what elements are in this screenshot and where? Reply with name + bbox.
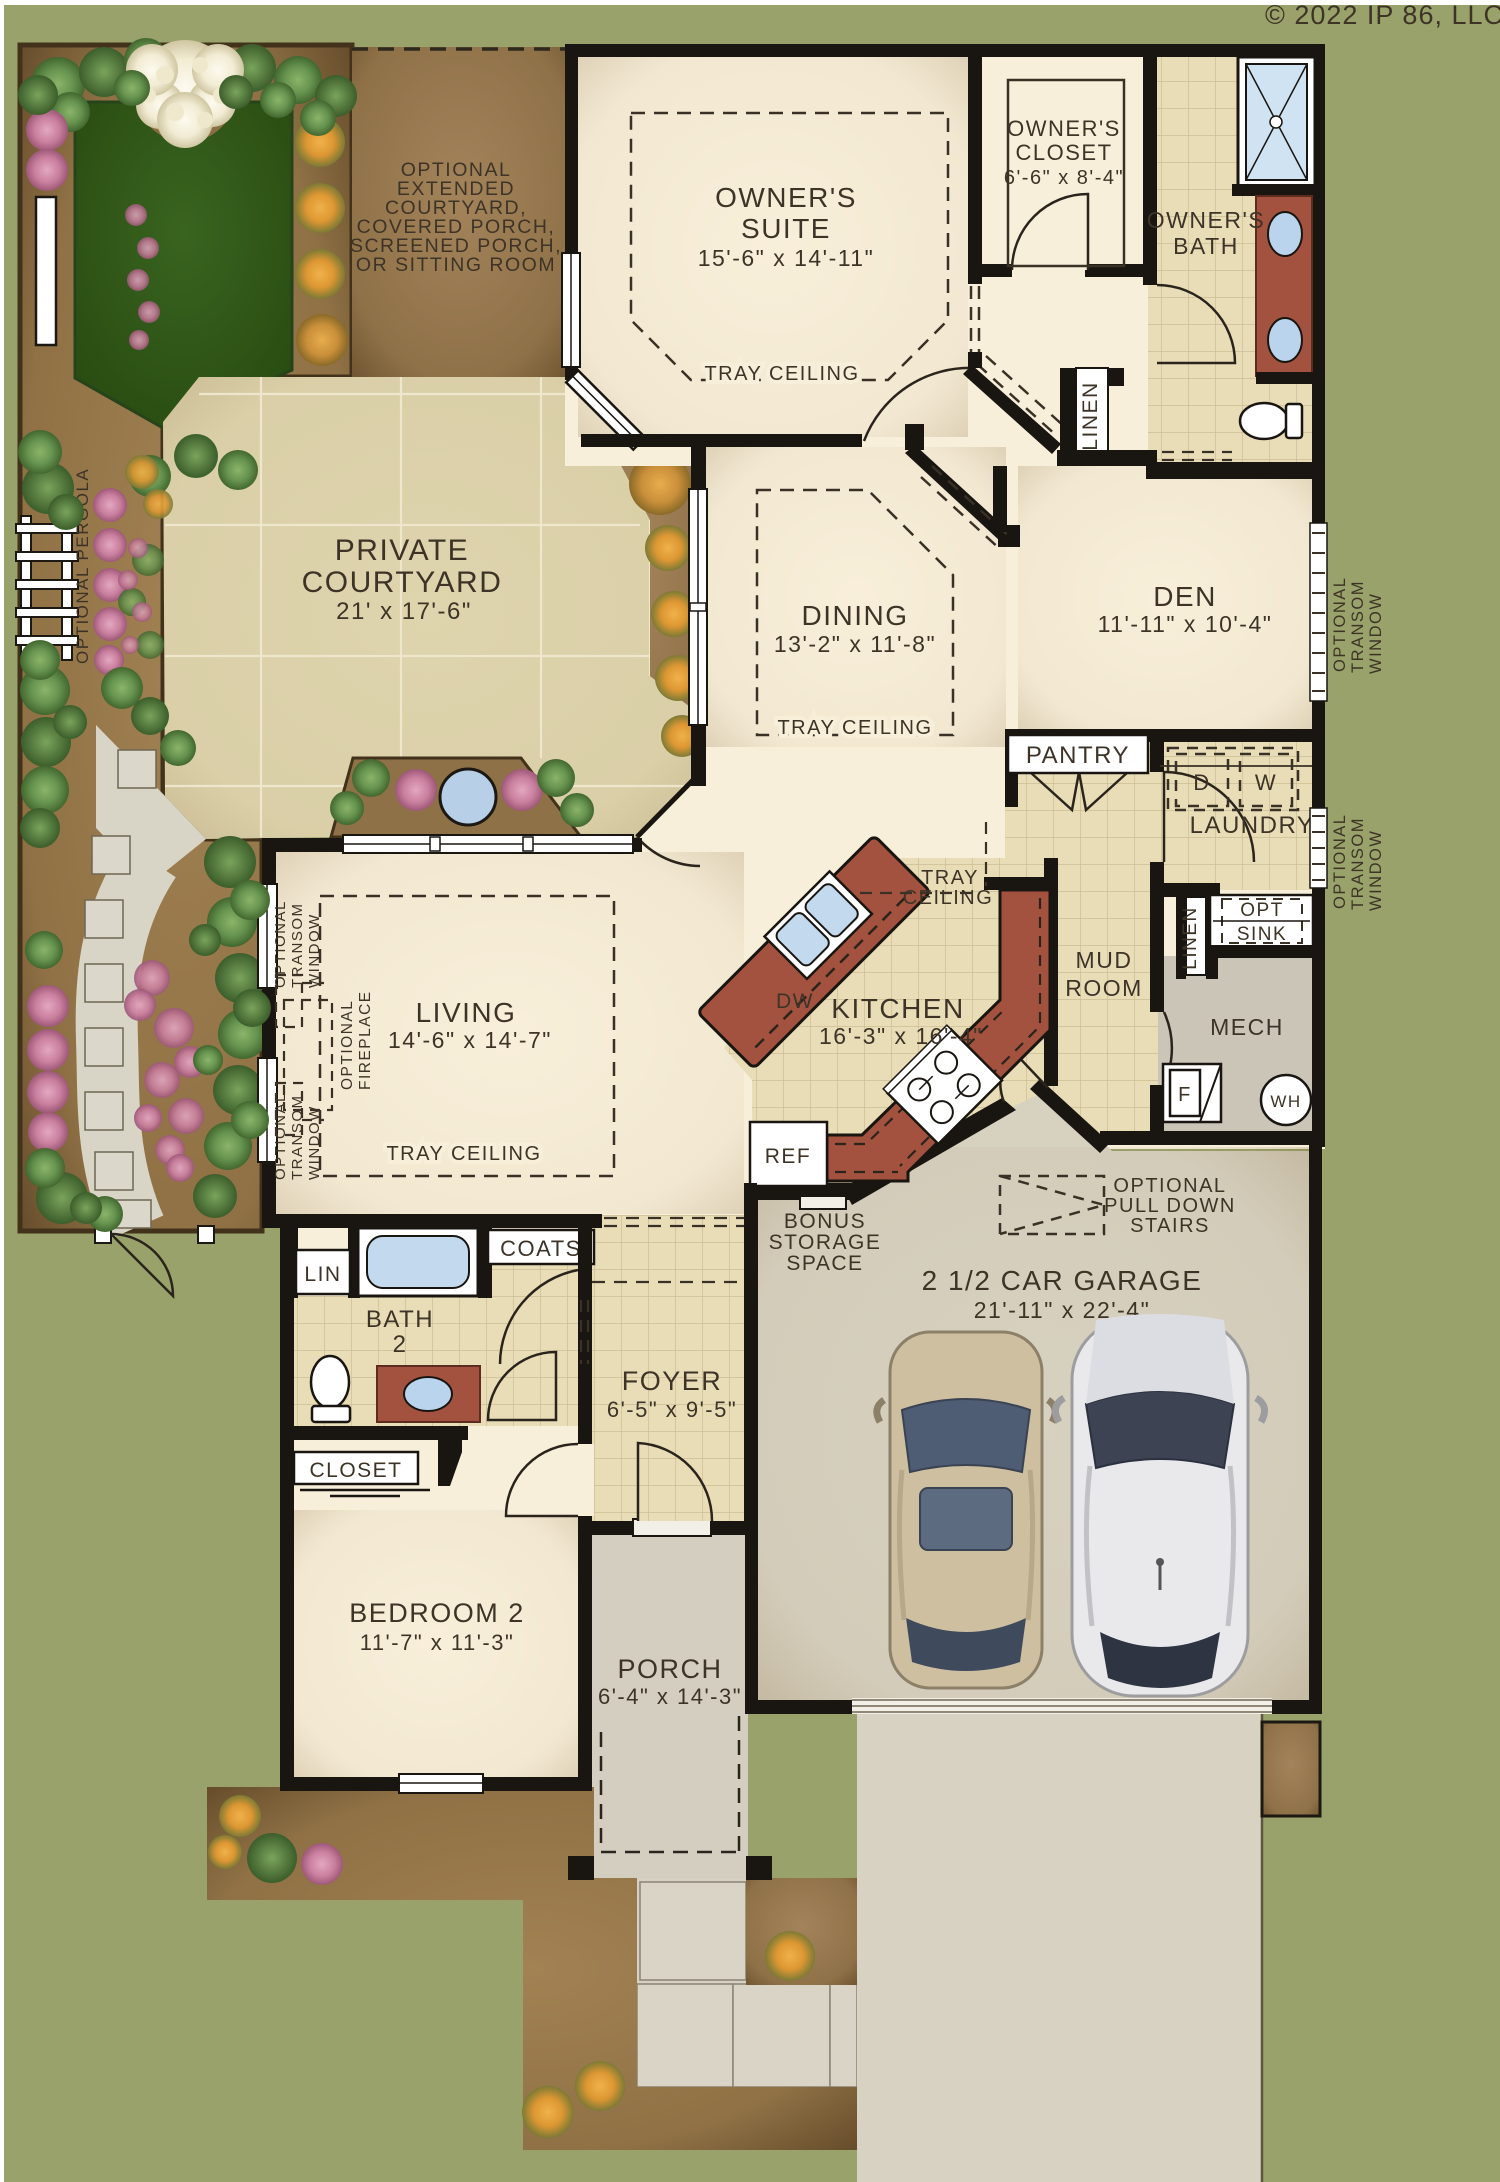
svg-text:DW: DW xyxy=(776,990,814,1013)
svg-text:LIN: LIN xyxy=(304,1263,341,1286)
svg-text:OWNER'S: OWNER'S xyxy=(715,182,857,213)
svg-text:LINEN: LINEN xyxy=(1180,906,1201,969)
svg-text:KITCHEN: KITCHEN xyxy=(831,993,964,1024)
svg-text:COATS: COATS xyxy=(500,1236,582,1261)
svg-text:6'-5" x 9'-5": 6'-5" x 9'-5" xyxy=(607,1397,737,1422)
svg-text:OPTIONAL: OPTIONAL xyxy=(1113,1175,1226,1197)
svg-text:OWNER'S: OWNER'S xyxy=(1007,116,1121,141)
svg-text:BONUS: BONUS xyxy=(784,1210,866,1233)
svg-text:BEDROOM 2: BEDROOM 2 xyxy=(349,1598,525,1628)
svg-text:W: W xyxy=(1255,770,1277,795)
svg-text:FOYER: FOYER xyxy=(622,1366,723,1396)
svg-text:14'-6" x 14'-7": 14'-6" x 14'-7" xyxy=(388,1027,552,1053)
svg-text:MUD: MUD xyxy=(1076,947,1133,973)
svg-text:STORAGE: STORAGE xyxy=(769,1231,882,1254)
svg-text:F: F xyxy=(1178,1084,1192,1106)
svg-text:MECH: MECH xyxy=(1210,1014,1284,1040)
svg-text:WH: WH xyxy=(1270,1092,1301,1111)
svg-text:DINING: DINING xyxy=(802,600,909,631)
svg-text:OPTIONAL: OPTIONAL xyxy=(1331,814,1349,909)
svg-text:TRANSOM: TRANSOM xyxy=(1349,817,1367,910)
svg-text:OPTIONAL: OPTIONAL xyxy=(339,1000,356,1090)
svg-text:CEILING: CEILING xyxy=(903,887,994,909)
svg-text:TRANSOM: TRANSOM xyxy=(289,1095,306,1181)
svg-text:OPTIONAL: OPTIONAL xyxy=(272,900,289,988)
svg-text:OWNER'S: OWNER'S xyxy=(1147,207,1265,233)
svg-text:COURTYARD: COURTYARD xyxy=(302,566,503,599)
svg-text:DEN: DEN xyxy=(1153,581,1217,612)
svg-text:SUITE: SUITE xyxy=(741,213,831,244)
svg-text:LINEN: LINEN xyxy=(1079,381,1102,450)
svg-text:16'-3" x 16'-4": 16'-3" x 16'-4" xyxy=(819,1023,983,1049)
svg-text:TRAY CEILING: TRAY CEILING xyxy=(386,1143,541,1165)
svg-text:OR SITTING ROOM: OR SITTING ROOM xyxy=(356,254,556,276)
svg-text:D: D xyxy=(1193,770,1210,795)
svg-text:ROOM: ROOM xyxy=(1065,975,1143,1001)
svg-text:SINK: SINK xyxy=(1237,924,1287,945)
svg-text:PANTRY: PANTRY xyxy=(1026,742,1130,769)
svg-text:BATH: BATH xyxy=(1173,233,1239,259)
svg-text:11'-7" x 11'-3": 11'-7" x 11'-3" xyxy=(360,1630,515,1655)
svg-text:PRIVATE: PRIVATE xyxy=(335,534,469,567)
svg-text:21' x 17'-6": 21' x 17'-6" xyxy=(336,598,472,625)
svg-text:LIVING: LIVING xyxy=(416,997,517,1028)
svg-text:TRANSOM: TRANSOM xyxy=(289,903,306,989)
svg-text:REF: REF xyxy=(765,1145,812,1168)
svg-text:OPT: OPT xyxy=(1240,900,1284,921)
svg-text:15'-6" x 14'-11": 15'-6" x 14'-11" xyxy=(698,245,875,271)
svg-text:WINDOW: WINDOW xyxy=(1367,830,1385,911)
svg-text:PORCH: PORCH xyxy=(617,1654,722,1684)
svg-text:TRAY CEILING: TRAY CEILING xyxy=(777,717,932,739)
svg-text:6'-6" x 8'-4": 6'-6" x 8'-4" xyxy=(1004,167,1124,189)
svg-text:BATH: BATH xyxy=(366,1306,434,1333)
svg-text:LAUNDRY: LAUNDRY xyxy=(1190,812,1315,839)
svg-text:SPACE: SPACE xyxy=(786,1252,863,1275)
svg-text:WINDOW: WINDOW xyxy=(1367,593,1385,674)
svg-text:STAIRS: STAIRS xyxy=(1130,1215,1210,1237)
svg-text:FIREPLACE: FIREPLACE xyxy=(357,990,374,1090)
svg-text:TRAY: TRAY xyxy=(921,867,979,889)
svg-text:CLOSET: CLOSET xyxy=(309,1459,402,1482)
svg-text:TRANSOM: TRANSOM xyxy=(1349,580,1367,673)
svg-text:PULL DOWN: PULL DOWN xyxy=(1104,1195,1236,1217)
svg-text:6'-4" x 14'-3": 6'-4" x 14'-3" xyxy=(598,1684,742,1709)
svg-text:TRAY CEILING: TRAY CEILING xyxy=(704,363,859,385)
svg-text:2: 2 xyxy=(393,1331,408,1358)
svg-text:© 2022 IP 86, LLC: © 2022 IP 86, LLC xyxy=(1265,0,1500,30)
svg-text:OPTIONAL: OPTIONAL xyxy=(272,1092,289,1180)
svg-text:OPTIONAL: OPTIONAL xyxy=(1331,577,1349,672)
svg-text:CLOSET: CLOSET xyxy=(1015,140,1112,165)
svg-text:2 1/2 CAR GARAGE: 2 1/2 CAR GARAGE xyxy=(922,1265,1203,1296)
svg-text:13'-2" x 11'-8": 13'-2" x 11'-8" xyxy=(774,631,936,657)
svg-text:11'-11" x 10'-4": 11'-11" x 10'-4" xyxy=(1098,611,1273,637)
